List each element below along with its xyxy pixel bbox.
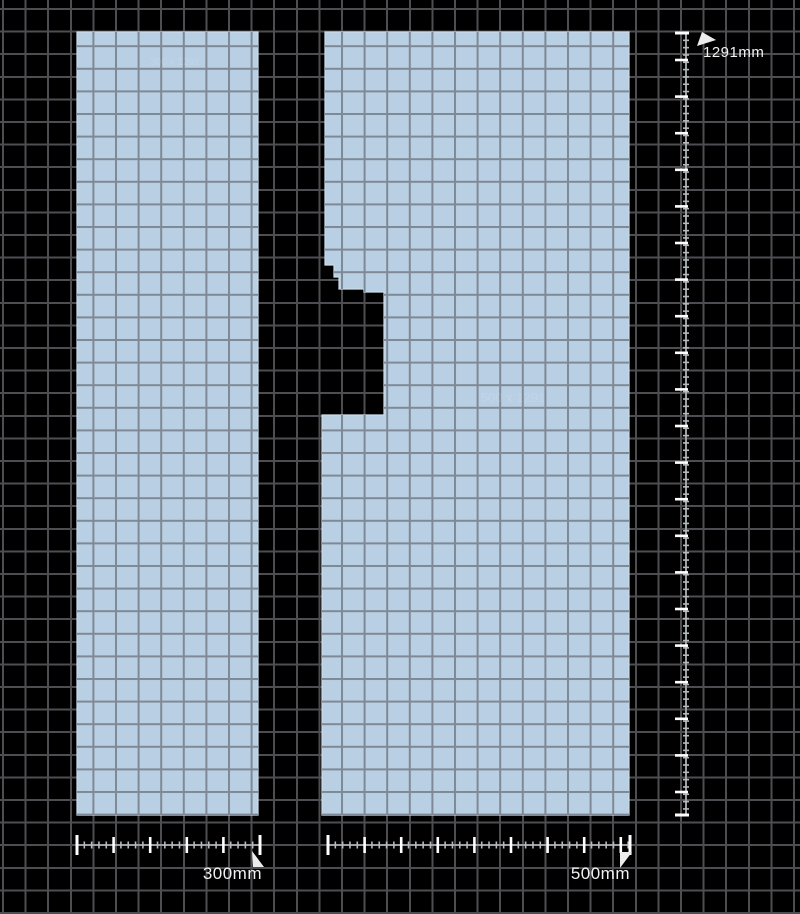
panel-500-faint-label: 500 x 1291 xyxy=(443,390,583,405)
height-ruler[interactable] xyxy=(675,32,716,815)
panel-300mm[interactable] xyxy=(77,32,258,815)
layout-canvas[interactable]: 300 x 1291 500 x 1291 1291mm 300mm 500mm xyxy=(0,0,800,914)
cutting-canvas[interactable] xyxy=(0,0,800,914)
width-ruler-left[interactable] xyxy=(77,835,264,867)
panel-500mm[interactable] xyxy=(322,32,629,815)
panel-300mm-grid xyxy=(77,32,258,815)
panel-500mm-grid xyxy=(322,32,629,815)
width-right-measurement-label: 500mm xyxy=(548,864,630,884)
panel-300-faint-label: 300 x 1291 xyxy=(133,57,217,68)
height-measurement-label: 1291mm xyxy=(703,44,764,61)
width-left-measurement-label: 300mm xyxy=(180,864,262,884)
